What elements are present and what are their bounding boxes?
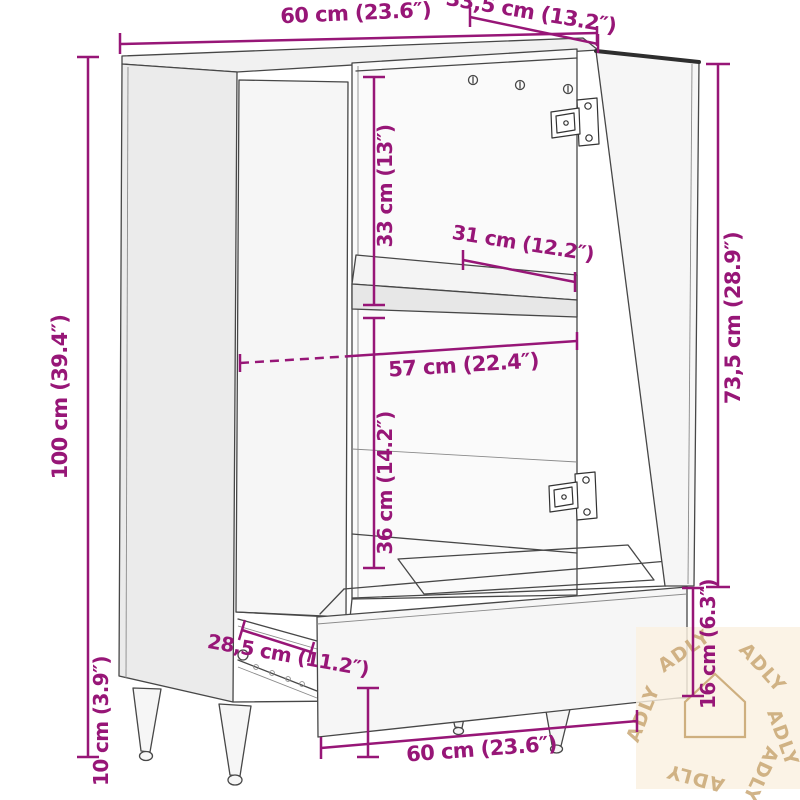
dim-label: 100 cm (39.4″) xyxy=(48,315,72,480)
hinge-screw xyxy=(585,103,591,109)
hinge-screw xyxy=(584,509,590,515)
dim-label: 33 cm (13″) xyxy=(373,125,397,248)
dim-label: 10 cm (3.9″) xyxy=(89,656,113,786)
dim-label: 16 cm (6.3″) xyxy=(696,579,720,709)
hinge-pin xyxy=(562,495,566,499)
left-side-panel xyxy=(119,64,237,702)
hinge-pin xyxy=(564,121,568,125)
dim-label: 60 cm (23.6″) xyxy=(405,732,557,767)
leg-cone xyxy=(219,704,251,776)
leg-foot xyxy=(228,775,242,785)
dimension-total-height: 100 cm (39.4″) xyxy=(48,57,99,757)
leg-foot xyxy=(454,728,464,735)
leg-cone xyxy=(133,688,161,752)
leg-foot xyxy=(140,752,153,761)
dim-label: 60 cm (23.6″) xyxy=(280,0,432,28)
leg-back-left xyxy=(133,688,161,761)
hinge-screw xyxy=(586,135,592,141)
furniture-dimension-diagram: ADLY ADLY ADLY ADLY ADLY ADLY 60 cm (23.… xyxy=(0,0,800,800)
cabinet-line-art xyxy=(119,38,699,785)
dim-label: 73,5 cm (28.9″) xyxy=(721,232,745,404)
left-door xyxy=(236,80,348,617)
dim-label: 36 cm (14.2″) xyxy=(373,411,397,554)
rail-lower-b xyxy=(238,667,317,698)
open-door-face xyxy=(596,51,699,586)
leg-front-left xyxy=(219,704,251,785)
dimension-door-height: 73,5 cm (28.9″) xyxy=(706,64,745,587)
hinge-screw xyxy=(583,477,589,483)
